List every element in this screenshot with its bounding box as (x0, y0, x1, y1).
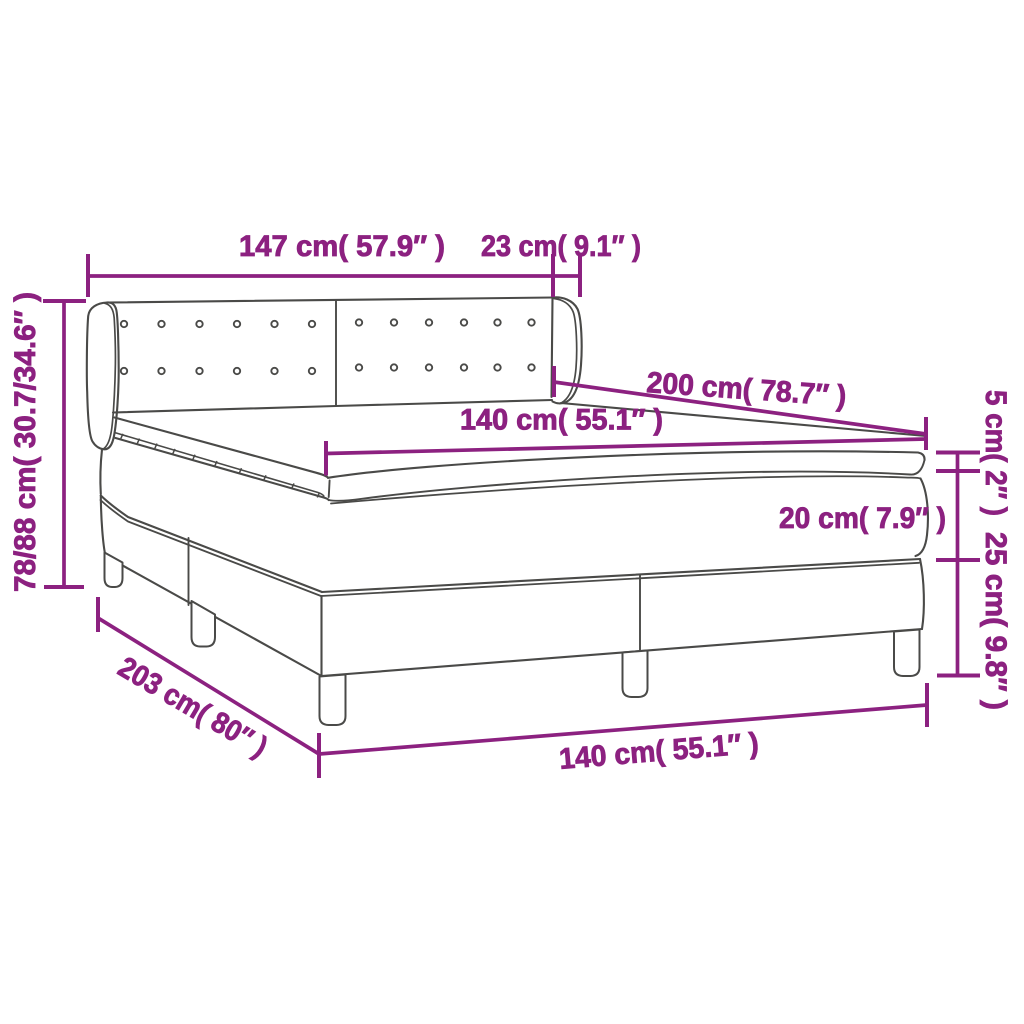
svg-text:147 cm( 57.9″ ): 147 cm( 57.9″ ) (239, 230, 445, 263)
svg-text:25 cm( 9.8″ ): 25 cm( 9.8″ ) (979, 532, 1012, 710)
svg-text:78/88 cm( 30.7/34.6″ ): 78/88 cm( 30.7/34.6″ ) (9, 292, 42, 592)
svg-text:23 cm( 9.1″ ): 23 cm( 9.1″ ) (481, 230, 641, 263)
svg-text:5 cm( 2″ ): 5 cm( 2″ ) (979, 390, 1012, 516)
svg-text:140 cm( 55.1″ ): 140 cm( 55.1″ ) (460, 404, 663, 437)
svg-text:20 cm( 7.9″ ): 20 cm( 7.9″ ) (779, 502, 946, 535)
